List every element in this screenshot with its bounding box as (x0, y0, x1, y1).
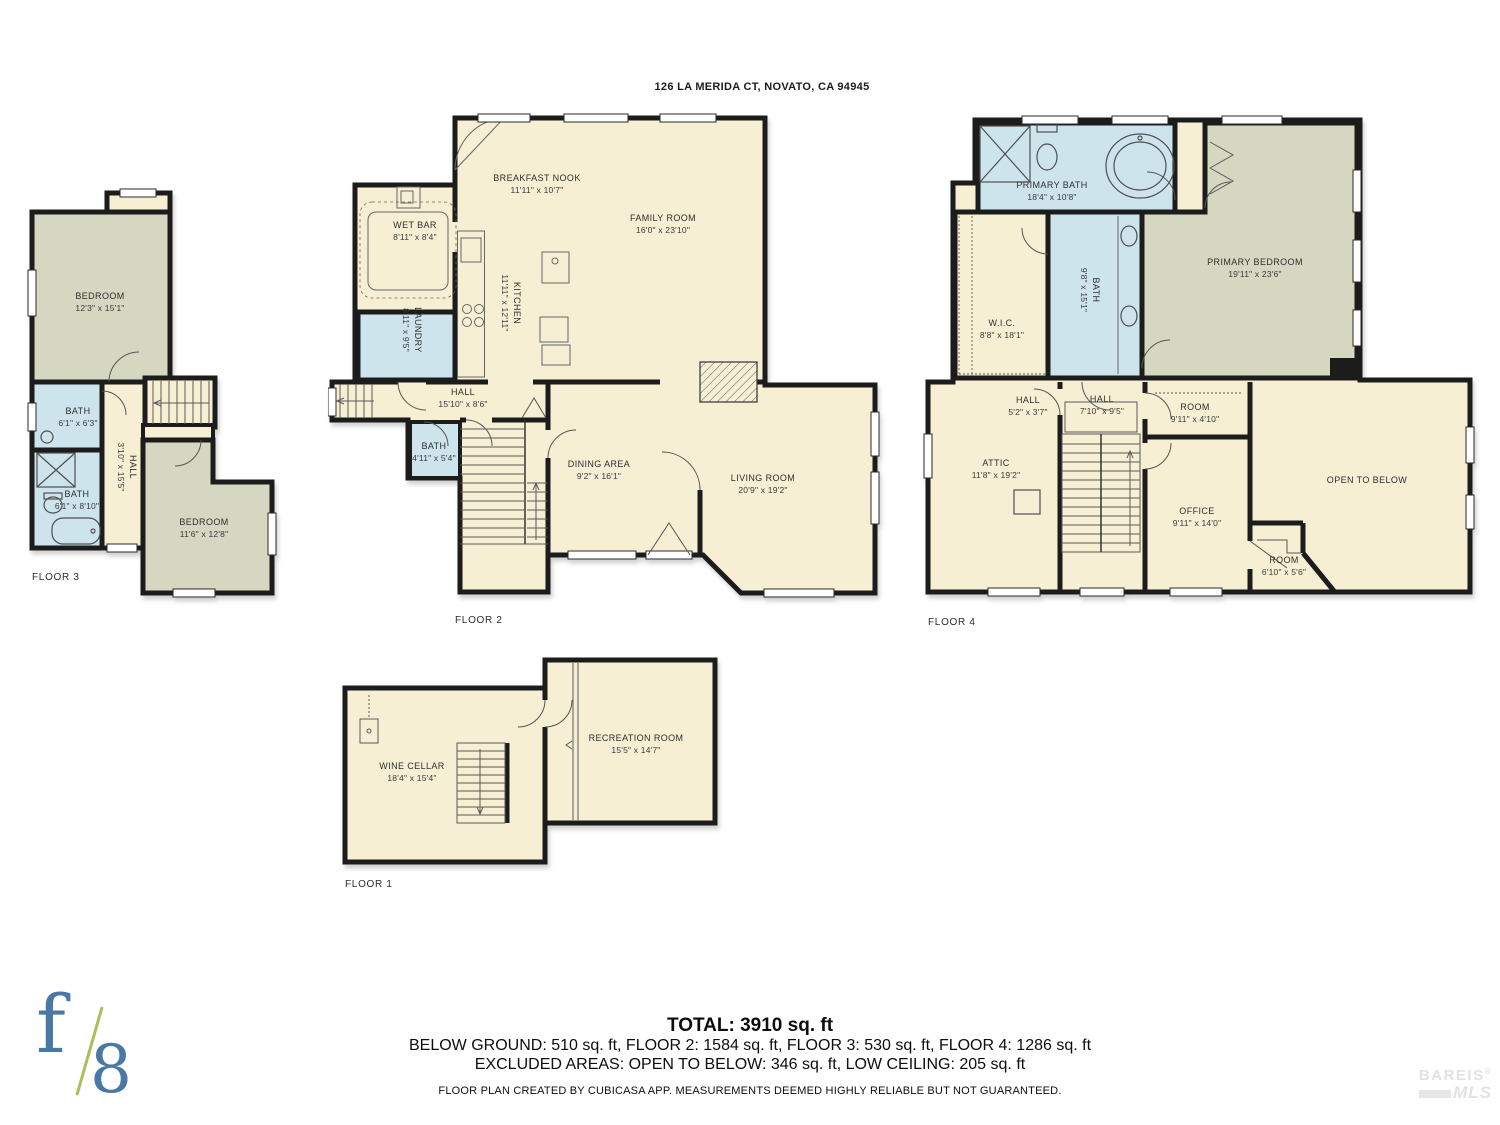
floor1-label: FLOOR 1 (345, 879, 393, 890)
f8-logo-f: f (36, 985, 66, 1065)
room-label-wic: W.I.C. 8'8" x 18'1" (980, 317, 1024, 341)
bareis-bar (1419, 1090, 1451, 1098)
room-label-wine-cellar: WINE CELLAR 18'4" x 15'4" (379, 760, 444, 784)
room-label-room: ROOM 9'11" x 4'10" (1171, 401, 1220, 425)
disclaimer-text: FLOOR PLAN CREATED BY CUBICASA APP. MEAS… (0, 1085, 1500, 1097)
room-label-bedroom: BEDROOM 11'6" x 12'8" (179, 516, 228, 540)
bareis-mls-watermark: BAREIS® MLS (1392, 1064, 1492, 1102)
bareis-mls: MLS (1453, 1083, 1492, 1102)
floorplan-page: 126 LA MERIDA CT, NOVATO, CA 94945 (0, 0, 1500, 1125)
room-label-bath: BATH 4'11" x 5'4" (412, 440, 456, 464)
room-label-bath: BATH 9'8" x 15'1" (1078, 268, 1102, 312)
room-label-open-to-below: OPEN TO BELOW (1327, 474, 1407, 486)
room-label-dining-area: DINING AREA 9'2" x 16'1" (568, 458, 630, 482)
f8-logo: f 8 (30, 985, 140, 1115)
room-label-hall: HALL 3'10" x 15'5" (115, 442, 139, 491)
bareis-reg: ® (1485, 1067, 1492, 1076)
room-label-hall: HALL 5'2" x 3'7" (1008, 394, 1047, 418)
floor3-label: FLOOR 3 (32, 572, 80, 583)
room-label-primary-bedroom: PRIMARY BEDROOM 19'11" x 23'6" (1207, 256, 1303, 280)
bareis-name: BAREIS (1419, 1067, 1485, 1084)
room-label-family-room: FAMILY ROOM 16'0" x 23'10" (630, 212, 696, 236)
total-area: TOTAL: 3910 sq. ft (0, 1016, 1500, 1036)
floor2-label: FLOOR 2 (455, 615, 503, 626)
room-label-primary-bath: PRIMARY BATH 18'4" x 10'8" (1016, 179, 1087, 203)
room-label-living-room: LIVING ROOM 20'9" x 19'2" (731, 472, 795, 496)
room-label-breakfast-nook: BREAKFAST NOOK 11'11" x 10'7" (493, 172, 580, 196)
excluded-areas: EXCLUDED AREAS: OPEN TO BELOW: 346 sq. f… (0, 1055, 1500, 1074)
room-label-office: OFFICE 9'11" x 14'0" (1173, 505, 1222, 529)
room-label-hall: HALL 7'10" x 9'5" (1080, 393, 1124, 417)
room-label-attic: ATTIC 11'8" x 19'2" (972, 457, 1021, 481)
floor3-plan-drawing (25, 185, 280, 600)
room-label-bath: BATH 6'1" x 8'10" (55, 488, 99, 512)
area-by-floor: BELOW GROUND: 510 sq. ft, FLOOR 2: 1584 … (0, 1036, 1500, 1055)
floor4-label: FLOOR 4 (928, 617, 976, 628)
room-label-bath: BATH 6'1" x 6'3" (58, 405, 97, 429)
floor2-plan-drawing (328, 112, 884, 604)
room-label-hall: HALL 15'10" x 8'6" (438, 386, 487, 410)
area-summary: TOTAL: 3910 sq. ft BELOW GROUND: 510 sq.… (0, 1016, 1500, 1097)
room-label-laundry: LAUNDRY 8'11" x 9'5" (400, 307, 424, 353)
room-label-kitchen: KITCHEN 11'11" x 12'11" (499, 274, 523, 331)
property-address: 126 LA MERIDA CT, NOVATO, CA 94945 (655, 81, 870, 93)
room-label-room: ROOM 6'10" x 5'6" (1262, 554, 1306, 578)
f8-logo-eight: 8 (90, 1037, 132, 1103)
room-label-wet-bar: WET BAR 8'11" x 8'4" (393, 219, 437, 243)
room-label-recreation-room: RECREATION ROOM 15'5" x 14'7" (589, 732, 684, 756)
room-label-bedroom: BEDROOM 12'3" x 15'1" (75, 290, 124, 314)
